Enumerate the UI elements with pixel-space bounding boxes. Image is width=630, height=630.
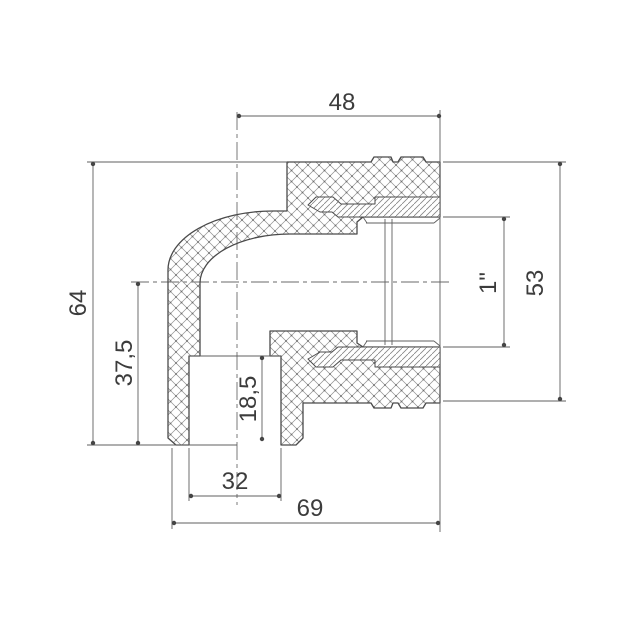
dimension-label-lower-height: 37,5 [111,340,138,387]
dimension-label-thread-size: 1" [475,272,502,294]
background [0,0,630,630]
dimension-label-socket-width: 32 [222,468,249,495]
drawing-canvas: 48 64 37,5 18,5 32 [0,0,630,630]
dimension-label-socket-depth: 18,5 [235,376,262,423]
dimension-label-overall-width: 69 [297,495,324,522]
dimension-label-right-height: 53 [522,270,549,297]
dimension-label-overall-height: 64 [65,290,92,317]
dimension-label-top-width: 48 [329,89,356,116]
technical-drawing: 48 64 37,5 18,5 32 [0,0,630,630]
